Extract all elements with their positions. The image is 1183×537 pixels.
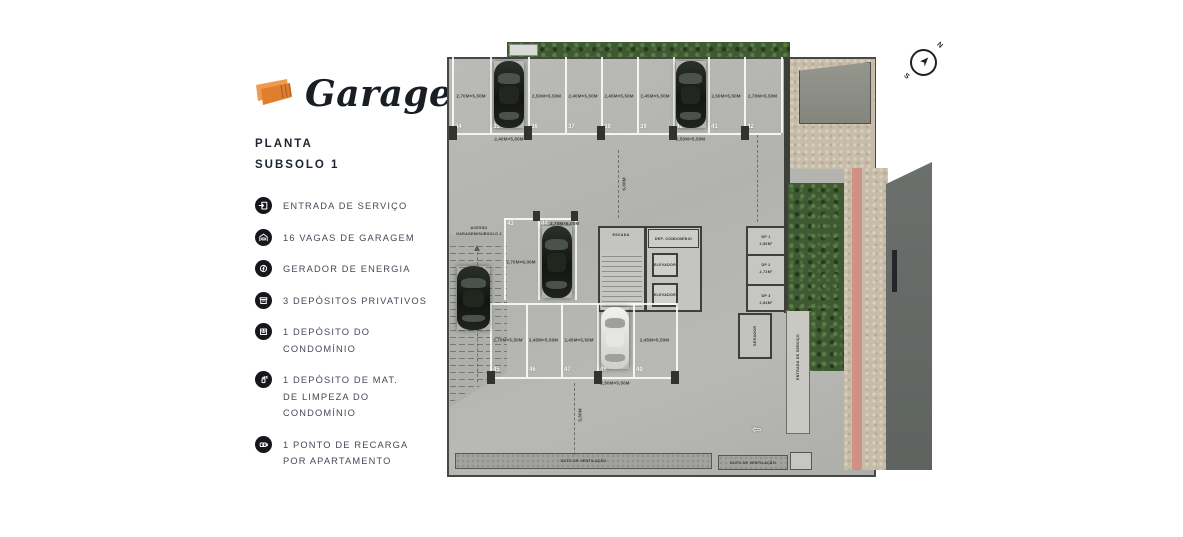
stall-dim: 2,70M×6,00M [506,260,535,265]
stall-dim: 2,50M×5,50M [532,94,561,99]
black-car [494,61,524,128]
stall-dim: 2,45M×5,50M [564,338,593,343]
column-pillar [571,211,578,221]
stall-line [490,57,492,133]
stall-row-line [490,303,676,305]
stall-line [575,218,577,300]
stall-dim-below: 2,50M×5,50M [600,381,629,386]
column-pillar [671,371,679,384]
stall-line [708,57,710,133]
black-car [676,61,706,128]
stall-number: 47 [564,367,571,373]
stall-row-line [452,133,781,135]
stall-line [526,303,528,377]
stall-line [673,57,675,133]
stall-number: 38 [604,124,611,130]
stall-number: 49 [636,367,643,373]
stall-line [504,218,506,300]
black-car [542,226,572,298]
stall-line [597,303,599,377]
stall-number: 37 [568,124,575,130]
column-pillar [669,126,677,140]
column-pillar [533,211,540,221]
column-pillar [524,126,532,140]
column-pillar [741,126,749,140]
stall-line [538,218,540,300]
stall-line [452,57,454,133]
stall-line [490,303,492,377]
stall-number: 43 [507,221,514,227]
page: Garagens PLANTA SUBSOLO 1 ENTRADA DE SER… [0,0,1183,537]
stall-dim: 2,45M×5,50M [640,338,669,343]
stall-dim: 2,70M×5,50M [748,94,777,99]
stall-dim: 2,70M×5,50M [493,338,522,343]
stall-dim: 2,40M×5,50M [568,94,597,99]
stall-dim: 2,45M×5,50M [604,94,633,99]
stall-number: 36 [531,124,538,130]
white-car [601,307,629,369]
stall-dim: 2,45M×5,50M [640,94,669,99]
stall-row-line [490,377,676,379]
stall-line [676,303,678,377]
stall-dim: 2,70M×5,50M [456,94,485,99]
stall-line [565,57,567,133]
black-car [457,266,490,330]
stall-number: 39 [640,124,647,130]
stall-layer: 342,70M×5,50M352,40M×5,50M362,50M×5,50M3… [0,0,1183,537]
column-pillar [449,126,457,140]
stall-line [528,57,530,133]
stall-number: 46 [529,367,536,373]
stall-dim: 2,50M×5,50M [711,94,740,99]
stall-dim-below: 2,40M×5,50M [494,137,523,142]
column-pillar [594,371,602,384]
floor-plan: ACESSO GARAGEM/SUBSOLO 2 ESCADA DEP. CON… [0,0,1183,537]
stall-line [781,57,783,133]
stall-line [561,303,563,377]
stall-line [601,57,603,133]
stall-number: 41 [711,124,718,130]
stall-dim: 2,45M×5,50M [529,338,558,343]
column-pillar [487,371,495,384]
stall-line [744,57,746,133]
stall-dim-below: 2,50M×5,50M [676,137,705,142]
column-pillar [597,126,605,140]
stall-line [637,57,639,133]
stall-line [633,303,635,377]
